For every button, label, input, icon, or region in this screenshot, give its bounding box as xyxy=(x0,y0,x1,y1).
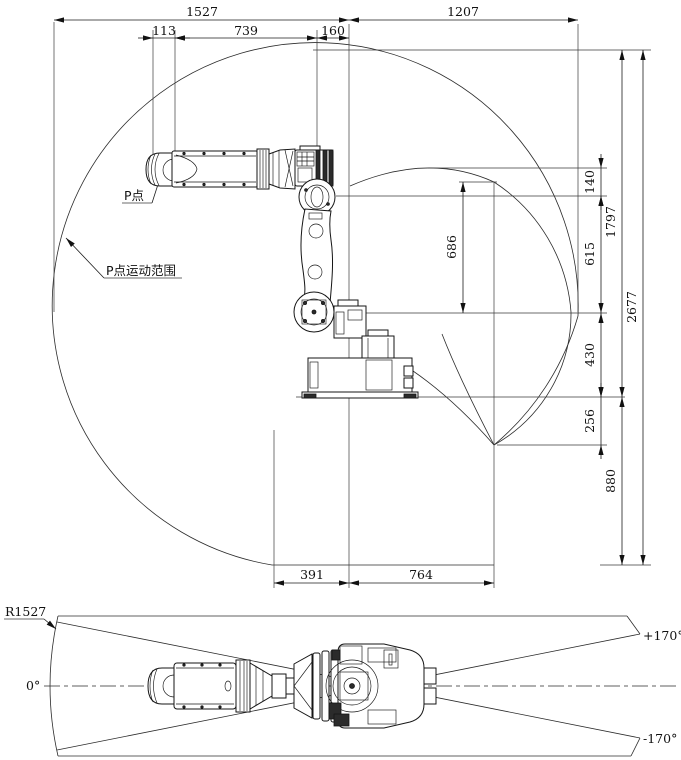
plan-hub xyxy=(272,674,294,698)
envelope-right-descent-arc xyxy=(494,316,578,445)
p-range-label: P点运动范围 xyxy=(106,263,176,278)
robot-plan-view xyxy=(148,644,436,728)
plan-forearm-tube xyxy=(174,663,236,709)
p-point-label: P点 xyxy=(124,188,144,203)
robot-shoulder-joint xyxy=(294,292,334,332)
dim-686-label: 686 xyxy=(444,235,459,259)
robot-forearm-ring xyxy=(257,149,269,189)
dim-113: 113 xyxy=(138,23,190,38)
plan-zero-label: 0° xyxy=(26,678,40,693)
plan-taper-cone xyxy=(250,663,272,709)
dim-2677: 2677 xyxy=(624,50,643,565)
dim-256: 256 xyxy=(582,383,601,459)
dim-160-label: 160 xyxy=(321,23,345,38)
dim-764: 764 xyxy=(349,567,494,583)
dim-2677-label: 2677 xyxy=(624,291,639,323)
dim-615: 615 xyxy=(582,196,601,313)
plan-minus170-label: -170° xyxy=(643,731,677,746)
dim-686: 686 xyxy=(444,182,463,313)
plan-view: R1527 0° +170° -170° xyxy=(4,604,681,756)
dim-113-label: 113 xyxy=(152,23,176,38)
dim-391: 391 xyxy=(274,567,349,583)
dim-1527: 1527 xyxy=(54,4,349,20)
robot-base-bracket xyxy=(334,300,394,360)
plan-swing-body xyxy=(326,644,436,728)
side-view: 1527 1207 113 739 160 391 764 xyxy=(52,4,651,588)
plan-wrist-flange xyxy=(148,668,174,704)
robot-dimension-drawing: 1527 1207 113 739 160 391 764 xyxy=(0,0,681,760)
plan-ring xyxy=(236,660,250,712)
dim-1207: 1207 xyxy=(349,4,578,20)
dim-1527-label: 1527 xyxy=(186,4,218,19)
robot-upper-arm xyxy=(301,209,333,303)
dim-880-label: 880 xyxy=(603,469,618,493)
dim-1797-label: 1797 xyxy=(603,206,618,238)
plan-yoke-fan xyxy=(294,654,312,718)
dim-1797: 1797 xyxy=(603,50,622,397)
robot-forearm-tube xyxy=(172,151,258,187)
dim-880: 880 xyxy=(603,397,622,565)
dim-140-label: 140 xyxy=(582,170,597,194)
plan-radius-callout: R1527 xyxy=(4,604,56,629)
dim-615-label: 615 xyxy=(582,242,597,266)
plan-plus170-label: +170° xyxy=(643,628,681,643)
p-range-callout: P点运动范围 xyxy=(66,238,182,278)
dim-140: 140 xyxy=(582,154,601,210)
dim-391-label: 391 xyxy=(300,567,324,582)
robot-base xyxy=(302,358,418,398)
dim-256-label: 256 xyxy=(582,409,597,433)
plan-bottom-corner xyxy=(631,738,640,756)
robot-yoke xyxy=(269,149,295,189)
envelope-base-arc-2 xyxy=(442,334,494,445)
dim-739-label: 739 xyxy=(234,23,258,38)
envelope-wrist-pocket-arc xyxy=(350,168,494,186)
dim-160: 160 xyxy=(317,23,349,38)
robot-wrist-flange xyxy=(146,153,174,186)
robot-side-view xyxy=(146,146,418,398)
dim-764-label: 764 xyxy=(409,567,433,582)
drawing-canvas: 1527 1207 113 739 160 391 764 xyxy=(0,0,681,760)
dim-430: 430 xyxy=(582,313,601,397)
plan-top-corner xyxy=(627,616,640,634)
plan-radius-label: R1527 xyxy=(5,604,46,619)
dim-739: 739 xyxy=(175,23,317,38)
dim-1207-label: 1207 xyxy=(447,4,479,19)
dim-430-label: 430 xyxy=(582,343,597,367)
